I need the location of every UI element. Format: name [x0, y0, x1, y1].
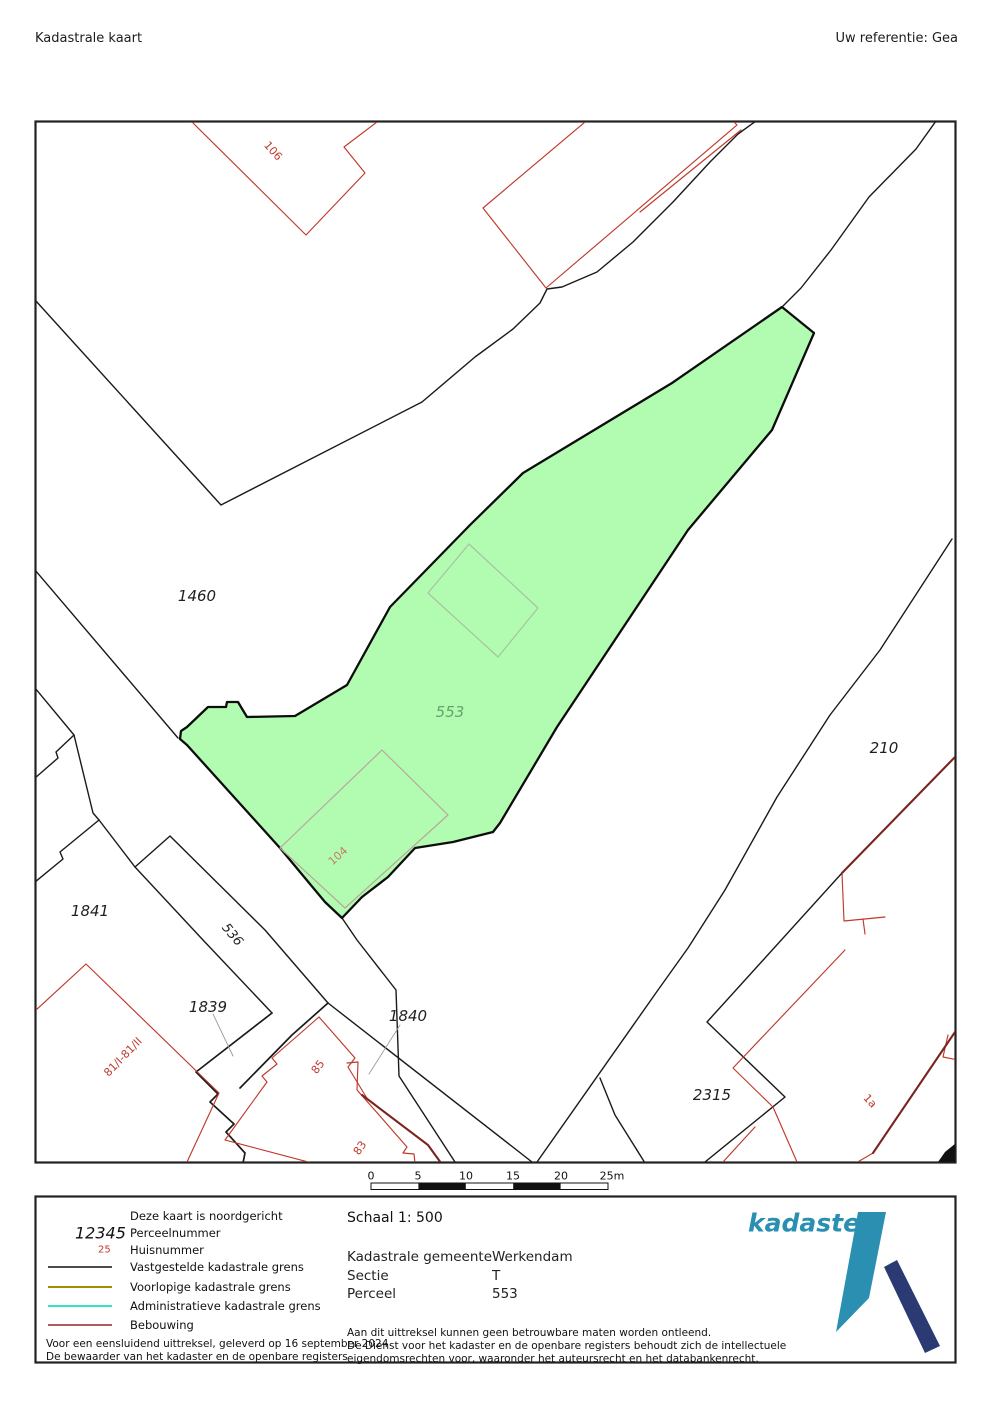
parcel-label-553: 553 [436, 703, 465, 721]
field-perceel-value: 553 [492, 1286, 518, 1302]
legend-north-note: Deze kaart is noordgericht [130, 1209, 283, 1223]
issue-statement-line2: De bewaarder van het kadaster en de open… [46, 1351, 348, 1363]
disclaimer-line2: De Dienst voor het kadaster en de openba… [347, 1340, 786, 1352]
issue-statement-line1: Voor een eensluidend uittreksel, gelever… [46, 1338, 388, 1350]
legend-administrative-boundary-label: Administratieve kadastrale grens [130, 1299, 321, 1313]
field-gemeente-value: Werkendam [492, 1249, 573, 1265]
parcel-label-2315: 2315 [693, 1086, 731, 1104]
field-sectie-label: Sectie [347, 1268, 389, 1284]
legend-housenumber-sample: 25 [98, 1245, 111, 1256]
scale-tick-25m: 25m [600, 1170, 625, 1183]
legend-parcelnumber-label: Perceelnummer [130, 1226, 221, 1240]
parcel-label-1839: 1839 [189, 998, 227, 1016]
legend-building-label: Bebouwing [130, 1318, 194, 1332]
legend-housenumber-label: Huisnummer [130, 1243, 204, 1257]
scale-tick-5: 5 [415, 1170, 422, 1183]
parcel-label-210: 210 [870, 739, 899, 757]
field-sectie-value: T [492, 1268, 500, 1284]
legend-provisional-boundary-label: Voorlopige kadastrale grens [130, 1280, 291, 1294]
field-gemeente-label: Kadastrale gemeente [347, 1249, 492, 1265]
cadastral-extract-page: Kadastrale kaart Uw referentie: Gea [0, 0, 991, 1403]
field-perceel-label: Perceel [347, 1286, 396, 1302]
legend-parcelnumber-sample: 12345 [75, 1224, 126, 1243]
scale-bar [371, 1183, 608, 1190]
parcel-label-1840: 1840 [389, 1007, 427, 1025]
parcel-label-1841: 1841 [71, 902, 109, 920]
scale-label: Schaal 1: 500 [347, 1210, 443, 1226]
kadaster-logo-wordmark: kadaster [748, 1209, 872, 1238]
legend-established-boundary-label: Vastgestelde kadastrale grens [130, 1260, 304, 1274]
disclaimer-line3: eigendomsrechten voor, waaronder het aut… [347, 1353, 759, 1365]
cadastral-map-canvas [0, 0, 991, 1403]
scale-tick-15: 15 [506, 1170, 520, 1183]
disclaimer-line1: Aan dit uittreksel kunnen geen betrouwba… [347, 1327, 711, 1339]
scale-tick-20: 20 [554, 1170, 568, 1183]
parcel-label-1460: 1460 [178, 587, 216, 605]
scale-tick-10: 10 [459, 1170, 473, 1183]
scale-tick-0: 0 [368, 1170, 375, 1183]
